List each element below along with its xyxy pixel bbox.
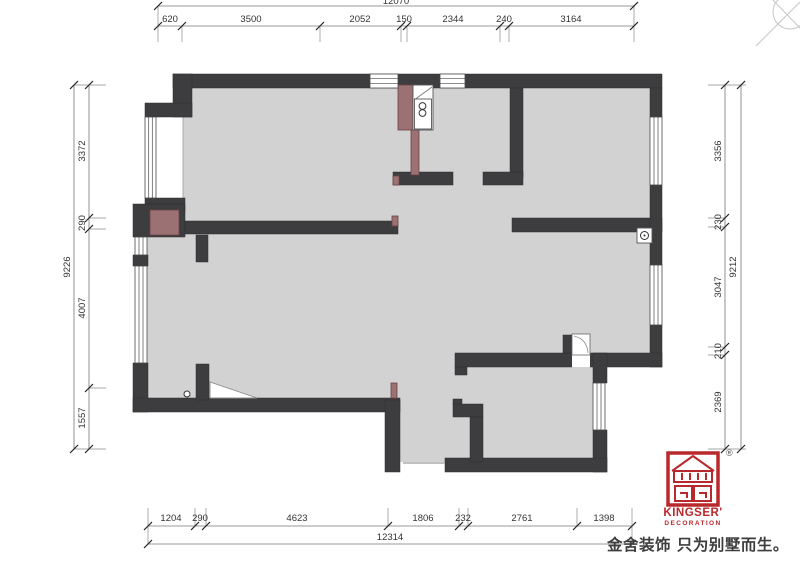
flue-fixture <box>413 85 433 130</box>
compass-icon <box>756 0 800 46</box>
bay-recess <box>156 117 183 198</box>
dim-left-total: 9226 <box>62 256 73 277</box>
meter-symbol <box>637 228 652 243</box>
svg-text:1806: 1806 <box>412 513 433 524</box>
svg-text:2052: 2052 <box>349 14 370 25</box>
brand-subtitle: DECORATION <box>664 520 721 527</box>
window-left-b <box>135 266 147 363</box>
registered-mark: ® <box>726 448 733 458</box>
dim-left-ticks <box>70 81 93 453</box>
svg-text:1557: 1557 <box>77 407 88 428</box>
svg-text:2344: 2344 <box>442 14 463 25</box>
svg-text:240: 240 <box>496 14 512 25</box>
dim-bottom: 12314 1204 290 4623 1806 232 2761 1398 <box>144 508 636 548</box>
door-bath <box>572 334 590 367</box>
window-right-b <box>650 265 662 325</box>
svg-text:230: 230 <box>713 214 724 230</box>
svg-text:210: 210 <box>713 343 724 359</box>
window-left-a <box>135 237 147 255</box>
window-top-1 <box>370 74 398 88</box>
kingser-logo: ® KINGSER' DECORATION <box>663 448 733 527</box>
logo-glyph <box>672 456 714 501</box>
dim-top-total: 12070 <box>383 0 409 7</box>
door-stop-symbol <box>184 391 190 397</box>
svg-text:3047: 3047 <box>713 276 724 297</box>
window-left-upper <box>145 117 156 198</box>
svg-text:3164: 3164 <box>560 14 581 25</box>
svg-text:4007: 4007 <box>77 297 88 318</box>
dim-left: 9226 3372 290 4007 1557 <box>62 81 106 453</box>
svg-text:290: 290 <box>77 215 88 231</box>
brand-name: KINGSER' <box>663 507 722 519</box>
dim-left-extensions <box>74 85 106 449</box>
brand-tagline: 金舍装饰 只为别墅而生。 <box>606 535 789 554</box>
svg-text:1398: 1398 <box>593 513 614 524</box>
svg-text:290: 290 <box>192 513 208 524</box>
svg-text:232: 232 <box>455 513 471 524</box>
svg-text:3356: 3356 <box>713 140 724 161</box>
svg-text:150: 150 <box>396 14 412 25</box>
dim-bottom-total: 12314 <box>377 532 403 543</box>
svg-text:2369: 2369 <box>713 391 724 412</box>
dim-right-total: 9212 <box>728 256 739 277</box>
svg-text:3372: 3372 <box>77 140 88 161</box>
window-right-a <box>650 117 662 185</box>
svg-text:1204: 1204 <box>160 513 181 524</box>
window-top-2 <box>440 74 465 88</box>
dim-top: 12070 620 3500 2052 150 2344 240 3164 <box>154 0 638 42</box>
svg-text:4623: 4623 <box>286 513 307 524</box>
svg-text:620: 620 <box>162 14 178 25</box>
dim-right: 9212 3356 230 3047 210 2369 <box>708 81 746 453</box>
floor-plan-canvas: 12070 620 3500 2052 150 2344 240 3164 12… <box>0 0 800 575</box>
svg-text:2761: 2761 <box>511 513 532 524</box>
window-right-lower <box>593 383 605 430</box>
svg-text:3500: 3500 <box>240 14 261 25</box>
